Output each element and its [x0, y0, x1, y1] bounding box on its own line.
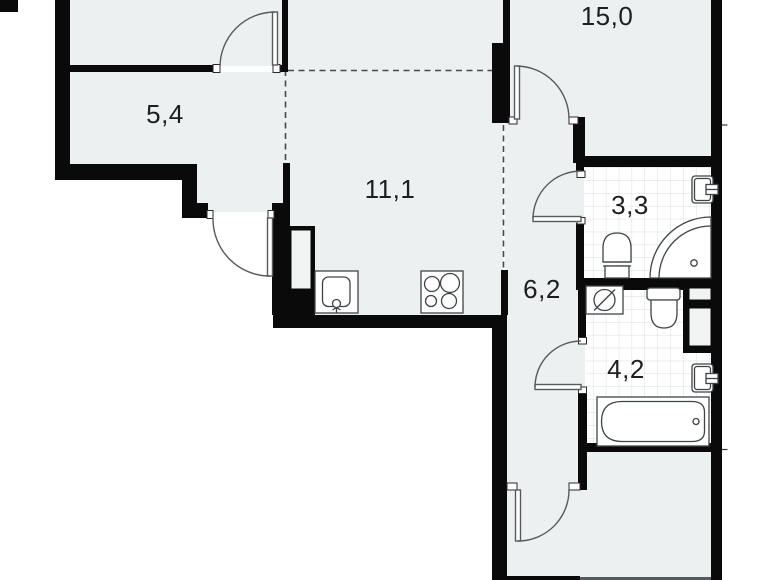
wall-upper-room-right	[282, 0, 288, 72]
wall-kitchen-bottom	[273, 315, 507, 328]
vent-shaft-kitchen-cell	[291, 230, 311, 289]
area-label-6-2: 6,2	[523, 274, 561, 304]
stove-burner-4	[442, 294, 457, 309]
floor-kitchen-11-1	[283, 0, 503, 315]
door-vestibule-5-4	[213, 218, 273, 276]
toilet-3-3-base	[605, 266, 629, 278]
jamb-upper-door-left	[213, 65, 220, 73]
wall-hall-left-thick	[492, 315, 507, 580]
wall-top-left-fragment	[0, 0, 18, 12]
stove-icon	[421, 271, 463, 313]
wall-3-3-left-lower	[576, 223, 584, 280]
wall-bottom-crop-strip	[505, 576, 580, 580]
stove-burner-2	[441, 274, 460, 293]
wall-bottom-5-4	[55, 164, 197, 180]
floor-vestibule	[197, 164, 285, 212]
toilet-3-3-icon	[603, 233, 631, 278]
wall-kitchen-left-thin	[283, 163, 290, 203]
door-leaf-3-3	[533, 217, 581, 222]
area-label-11-1: 11,1	[365, 174, 416, 204]
jamb-5-4-door-left	[207, 211, 213, 219]
floor-plan-drawing: 5,4 15,0 11,1 6,2 3,3 4,2	[0, 0, 780, 580]
wall-junction-ticks	[722, 125, 728, 450]
wall-kitchen-left-block	[273, 289, 315, 315]
jamb-entry-door-right	[569, 483, 580, 490]
floor-hallway-6-2	[505, 120, 585, 490]
corner-bath-drain	[691, 260, 697, 266]
jamb-3-3-door-top	[577, 171, 585, 178]
jamb-entry-door-left	[507, 483, 517, 490]
toilet-3-3-bowl	[603, 233, 631, 262]
door-leaf-4-2	[535, 385, 581, 390]
wall-outer-left	[55, 0, 70, 180]
door-leaf-vestibule	[268, 218, 273, 276]
wall-3-3-top	[578, 156, 712, 167]
area-label-5-4: 5,4	[146, 99, 184, 129]
door-leaf-entry	[516, 490, 521, 541]
wall-step-horizontal	[197, 203, 208, 218]
washing-machine-icon	[586, 286, 623, 314]
wall-upper-room-bottom	[70, 65, 213, 72]
wall-4-2-left-upper	[578, 290, 586, 338]
kitchen-faucet	[333, 300, 341, 308]
door-leaf-upper-room	[273, 12, 278, 65]
jamb-15-0-door-right	[569, 117, 578, 124]
floor-plan-canvas: 5,4 15,0 11,1 6,2 3,3 4,2	[0, 0, 780, 580]
door-arc-vestibule	[213, 218, 270, 276]
floor-upper-room	[70, 0, 283, 66]
bathtub-drain	[693, 419, 699, 425]
vent-shaft-bath-cell-2	[689, 308, 711, 346]
wall-hall-left-thin	[501, 270, 508, 315]
vent-shaft-bath-cell-1	[689, 288, 711, 300]
wall-step-vertical	[182, 164, 197, 218]
wall-15-0-left-thin	[503, 0, 510, 43]
door-leaf-15-0	[515, 66, 520, 119]
bathtub-inner	[602, 402, 705, 442]
bathtub-icon	[597, 397, 709, 446]
kitchen-sink-icon	[315, 271, 358, 313]
toilet-4-2-cistern	[647, 288, 680, 300]
stove-burner-1	[425, 277, 440, 292]
area-label-15-0: 15,0	[581, 1, 634, 31]
floor-bottom-room	[505, 450, 712, 580]
toilet-4-2-bowl	[651, 300, 677, 328]
wall-pier-15-0	[492, 43, 510, 123]
wall-4-2-left-lower	[578, 392, 587, 490]
stove-burner-3	[426, 296, 437, 307]
area-label-4-2: 4,2	[607, 354, 645, 384]
area-label-3-3: 3,3	[611, 190, 649, 220]
